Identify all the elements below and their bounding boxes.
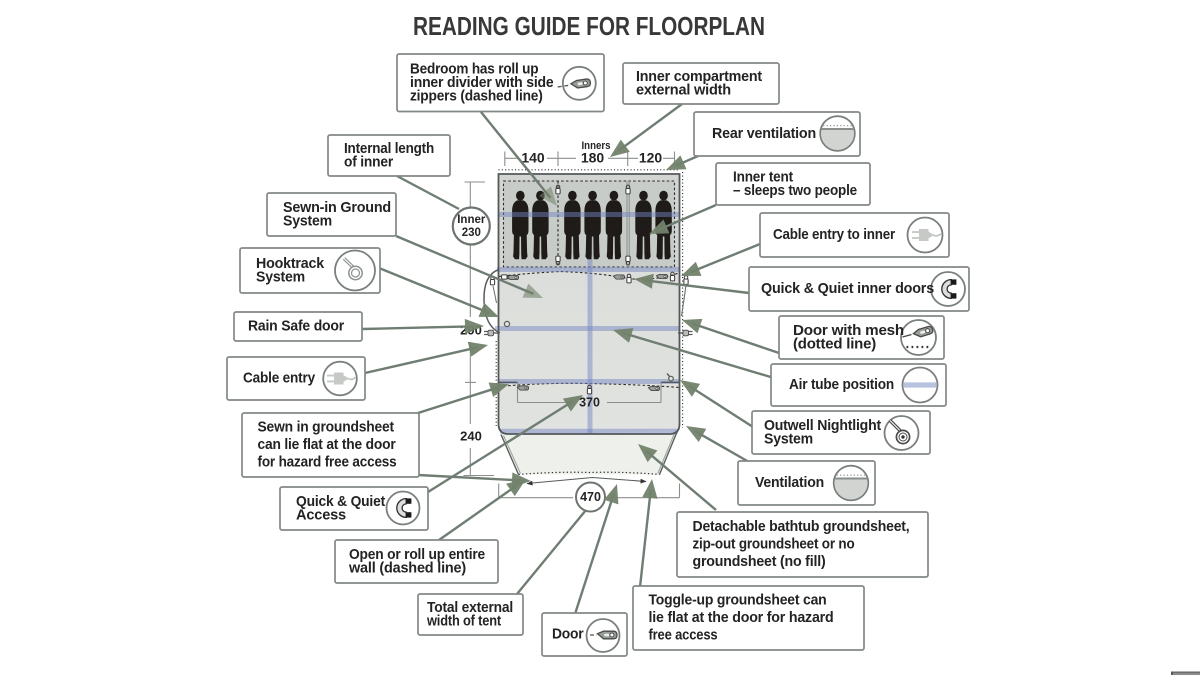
svg-text:Quick & Quiet inner doors: Quick & Quiet inner doors	[761, 280, 934, 297]
svg-text:Rain Safe door: Rain Safe door	[248, 318, 344, 335]
svg-text:Sewn in groundsheet: Sewn in groundsheet	[258, 419, 395, 436]
svg-text:Cable entry: Cable entry	[243, 370, 316, 387]
svg-text:Air tube position: Air tube position	[789, 376, 894, 393]
svg-text:can lie flat at the door: can lie flat at the door	[258, 436, 396, 453]
svg-text:230: 230	[462, 227, 481, 239]
svg-text:zip-out groundsheet or no: zip-out groundsheet or no	[693, 536, 855, 553]
svg-text:width of tent: width of tent	[426, 613, 501, 630]
svg-text:System: System	[764, 431, 813, 448]
svg-text:– sleeps two people: – sleeps two people	[733, 182, 857, 199]
svg-text:System: System	[256, 269, 305, 286]
svg-text:wall (dashed line): wall (dashed line)	[348, 560, 466, 577]
svg-text:for hazard free access: for hazard free access	[258, 454, 397, 471]
svg-text:Access: Access	[296, 507, 346, 524]
svg-text:of inner: of inner	[344, 154, 393, 171]
svg-text:Rear ventilation: Rear ventilation	[712, 125, 816, 142]
svg-text:Ventilation: Ventilation	[755, 474, 824, 491]
svg-text:System: System	[283, 213, 332, 230]
svg-text:470: 470	[580, 490, 601, 504]
svg-text:180: 180	[581, 150, 605, 166]
svg-text:140: 140	[521, 150, 545, 166]
svg-text:free access: free access	[649, 627, 718, 644]
svg-text:240: 240	[460, 429, 482, 444]
svg-text:lie flat at the door for hazar: lie flat at the door for hazard	[649, 609, 834, 626]
svg-text:groundsheet (no fill): groundsheet (no fill)	[693, 553, 826, 570]
svg-text:zippers (dashed line): zippers (dashed line)	[410, 88, 543, 105]
svg-text:Cable entry to inner: Cable entry to inner	[773, 226, 895, 243]
svg-text:Toggle-up groundsheet can: Toggle-up groundsheet can	[649, 592, 827, 609]
svg-text:READING GUIDE FOR FLOORPLAN: READING GUIDE FOR FLOORPLAN	[413, 11, 765, 41]
svg-text:(dotted line): (dotted line)	[793, 336, 876, 353]
svg-text:120: 120	[639, 150, 663, 166]
svg-text:370: 370	[579, 396, 600, 410]
svg-text:external width: external width	[636, 82, 731, 99]
svg-text:Inner: Inner	[457, 214, 486, 226]
svg-text:Door: Door	[552, 626, 584, 643]
svg-text:Detachable bathtub groundsheet: Detachable bathtub groundsheet,	[693, 518, 910, 535]
